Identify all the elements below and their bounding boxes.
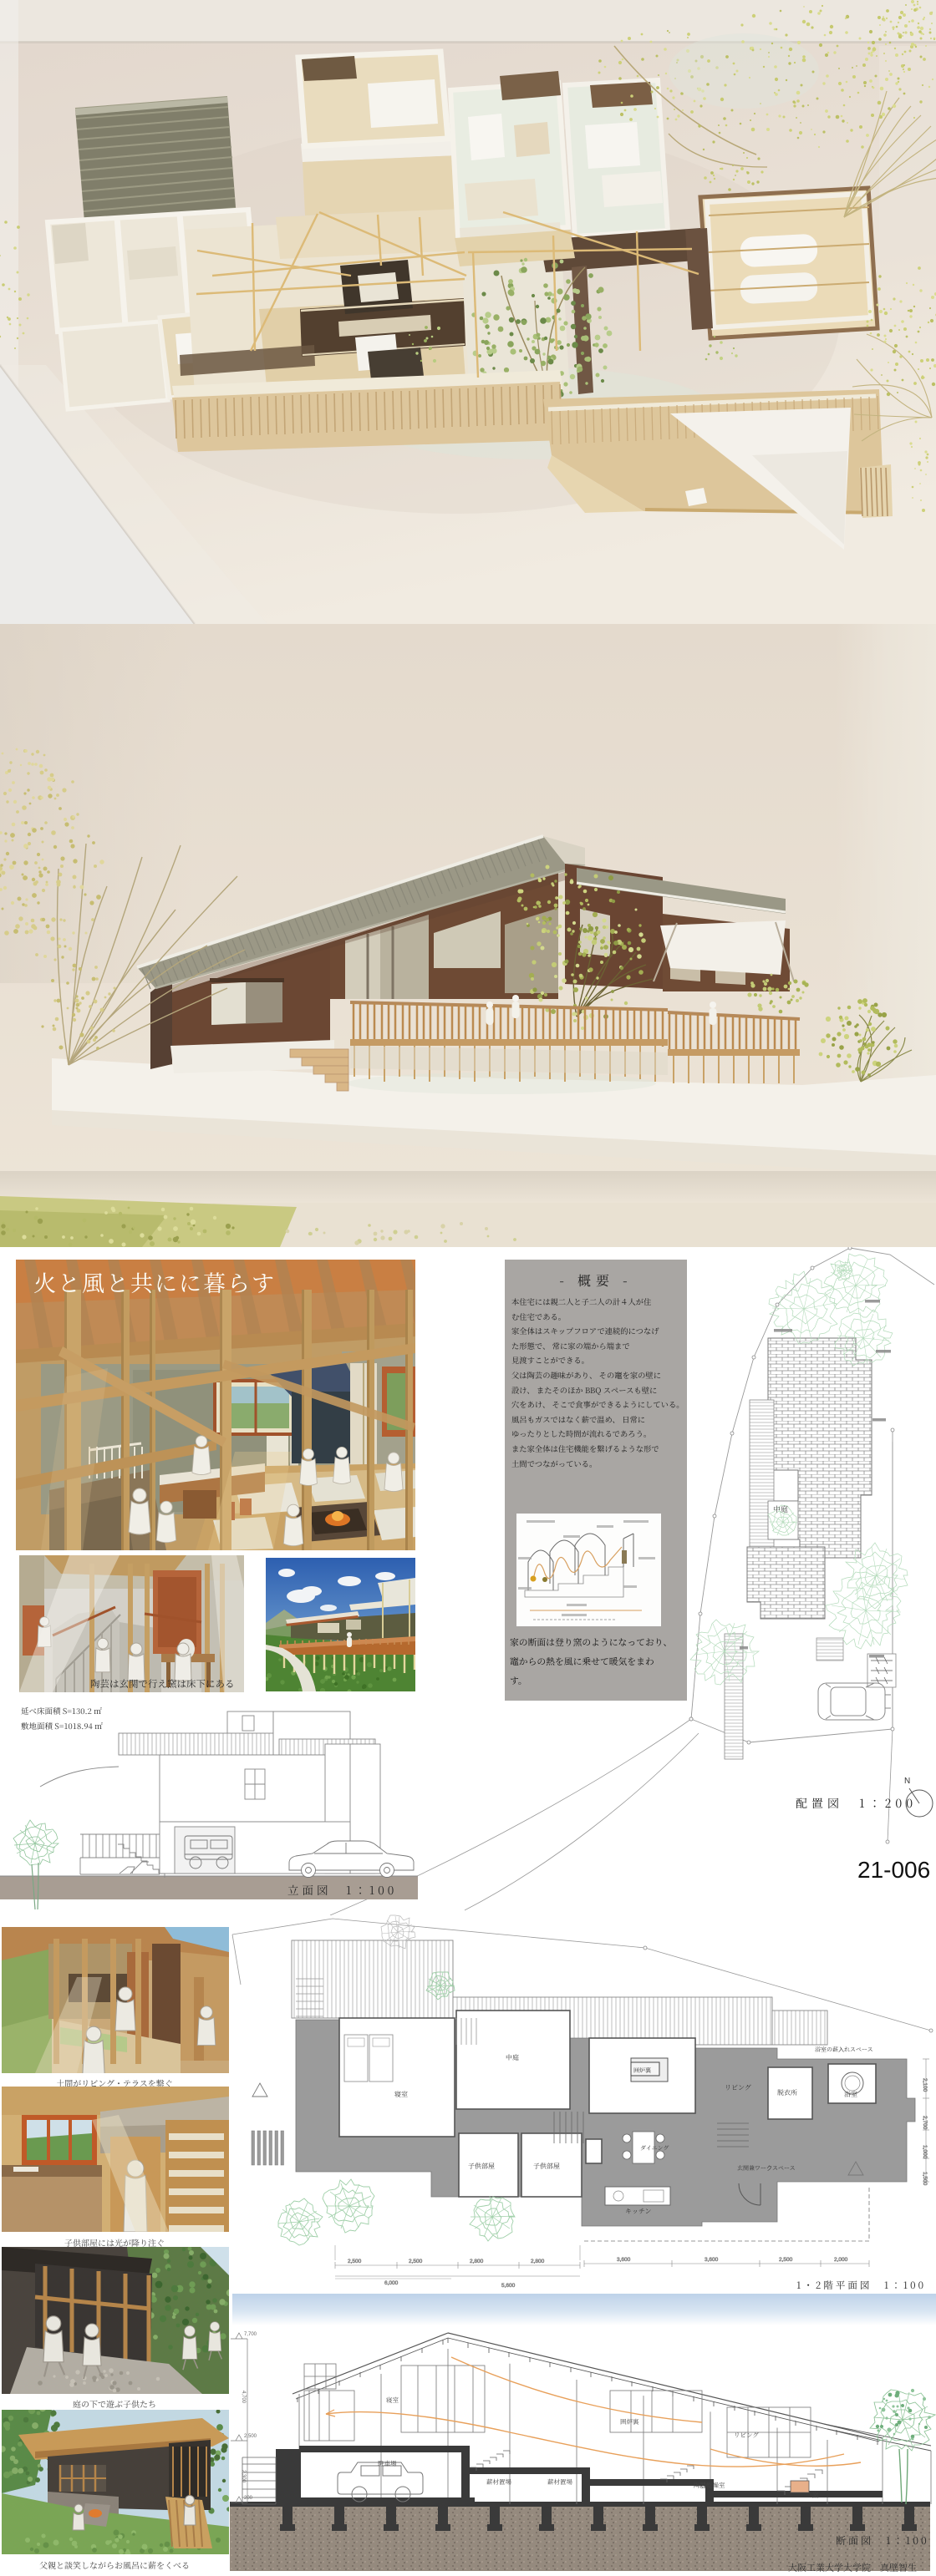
svg-text:駐車場: 駐車場 <box>377 2459 397 2468</box>
svg-text:陶器乾燥室: 陶器乾燥室 <box>694 2481 725 2490</box>
svg-text:薪材置場: 薪材置場 <box>486 2477 511 2487</box>
svg-text:2,300: 2,300 <box>241 2470 246 2483</box>
svg-text:6,000: 6,000 <box>384 2280 399 2286</box>
svg-text:2,500: 2,500 <box>244 2434 257 2439</box>
svg-text:玄関兼ワークスペース: 玄関兼ワークスペース <box>737 2164 796 2173</box>
svg-text:2,000: 2,000 <box>834 2257 848 2263</box>
svg-text:2,700: 2,700 <box>922 2116 928 2130</box>
svg-text:窯: 窯 <box>812 2491 819 2500</box>
svg-text:子供部屋: 子供部屋 <box>468 2162 495 2171</box>
svg-text:1,500: 1,500 <box>922 2172 928 2186</box>
svg-text:リビング: リビング <box>725 2083 751 2092</box>
svg-text:中庭: 中庭 <box>773 1504 788 1514</box>
svg-text:ダイニング: ダイニング <box>640 2144 669 2153</box>
svg-text:寝室: 寝室 <box>386 2396 399 2405</box>
svg-text:1,000: 1,000 <box>922 2145 928 2159</box>
svg-text:2,100: 2,100 <box>922 2078 928 2092</box>
svg-text:3,600: 3,600 <box>617 2257 631 2263</box>
svg-text:3,600: 3,600 <box>705 2257 719 2263</box>
svg-text:浴室: 浴室 <box>844 2090 857 2099</box>
svg-text:薪材置場: 薪材置場 <box>547 2477 572 2487</box>
svg-text:脱衣所: 脱衣所 <box>777 2088 797 2097</box>
svg-text:N: N <box>904 1777 910 1786</box>
svg-text:リビング: リビング <box>734 2431 759 2440</box>
svg-text:4,700: 4,700 <box>241 2391 246 2404</box>
svg-text:2,500: 2,500 <box>779 2257 793 2263</box>
svg-text:200: 200 <box>244 2496 253 2501</box>
svg-text:寝室: 寝室 <box>394 2090 408 2099</box>
svg-text:2,800: 2,800 <box>531 2259 545 2264</box>
svg-text:2,500: 2,500 <box>348 2259 362 2264</box>
svg-text:囲炉裏: 囲炉裏 <box>633 2066 651 2075</box>
svg-text:2,800: 2,800 <box>470 2259 484 2264</box>
svg-text:キッチン: キッチン <box>625 2207 651 2216</box>
svg-text:5,600: 5,600 <box>501 2283 516 2289</box>
svg-text:中庭: 中庭 <box>506 2053 519 2062</box>
svg-text:囲炉裏: 囲炉裏 <box>620 2417 639 2426</box>
svg-text:子供部屋: 子供部屋 <box>533 2162 560 2171</box>
svg-text:2,500: 2,500 <box>409 2259 423 2264</box>
svg-text:7,700: 7,700 <box>244 2332 257 2337</box>
svg-text:浴室の薪入れスペース: 浴室の薪入れスペース <box>815 2046 873 2054</box>
